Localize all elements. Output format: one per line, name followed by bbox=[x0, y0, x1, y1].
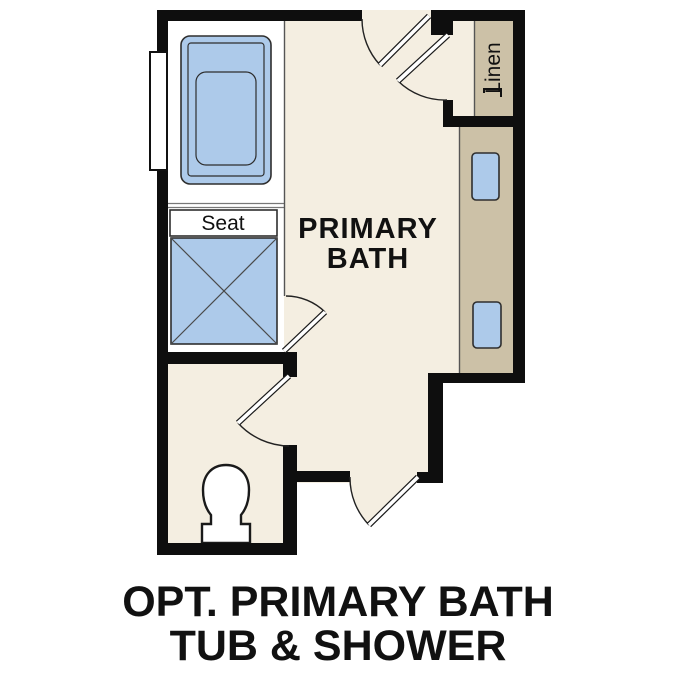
room-label-line1: PRIMARY bbox=[298, 213, 438, 245]
wall-wc-bottom bbox=[157, 543, 297, 555]
wall-wc-right bbox=[283, 445, 297, 555]
linen-label: Linen bbox=[482, 42, 505, 93]
wall-linen-bottom bbox=[443, 116, 525, 127]
wall-wc-jamb-top bbox=[283, 364, 297, 377]
wall-below-vanity bbox=[428, 373, 443, 483]
window bbox=[150, 52, 167, 170]
wall-top-left bbox=[157, 10, 362, 21]
sink-bottom bbox=[473, 302, 501, 348]
caption-line1: OPT. PRIMARY BATH bbox=[122, 578, 554, 626]
seat-label: Seat bbox=[201, 212, 244, 235]
caption-line2: TUB & SHOWER bbox=[170, 622, 507, 670]
wall-linen-jamb-top bbox=[431, 10, 453, 35]
bathtub-outer bbox=[181, 36, 271, 184]
bathtub bbox=[181, 36, 271, 184]
floorplan-svg: Seat bbox=[0, 0, 687, 687]
room-label-line2: BATH bbox=[327, 243, 409, 275]
wall-entry-right-stub bbox=[417, 472, 443, 483]
toilet bbox=[202, 465, 250, 543]
floorplan-page: Seat bbox=[0, 0, 687, 687]
wall-shower-bottom bbox=[157, 352, 297, 364]
shower bbox=[171, 238, 277, 344]
sink-top bbox=[472, 153, 499, 200]
wall-right bbox=[513, 10, 525, 383]
